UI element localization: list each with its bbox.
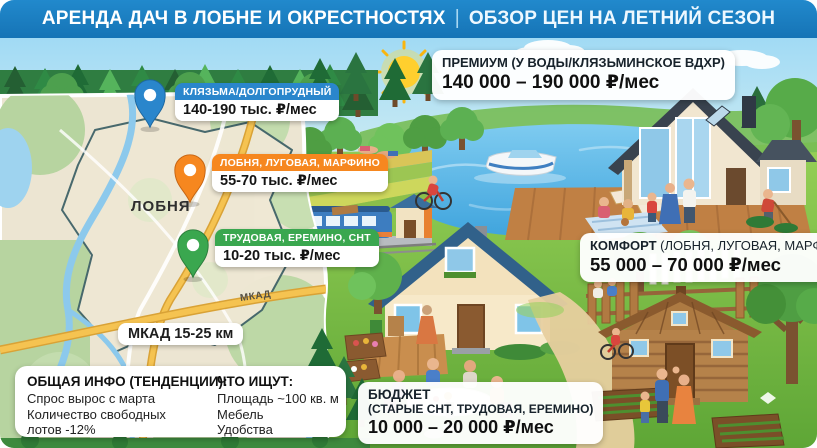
budget-tier-card: БЮДЖЕТ (СТАРЫЕ СНТ, ТРУДОВАЯ, ЕРЕМИНО) 1… — [358, 382, 603, 444]
pin-card-trudovaya: ТРУДОВАЯ, ЕРЕМИНО, СНТ 10-20 тыс. ₽/мес — [215, 229, 379, 267]
pin-card-klyazma-title: КЛЯЗЬМА/ДОЛГОПРУДНЫЙ — [175, 83, 339, 100]
header-subtitle: ОБЗОР ЦЕН НА ЛЕТНИЙ СЕЗОН — [469, 8, 775, 30]
info-search-title: ЧТО ИЩУТ: — [217, 374, 339, 389]
premium-tier-title: ПРЕМИУМ (У ВОДЫ/КЛЯЗЬМИНСКОЕ ВДХР) — [442, 55, 725, 70]
budget-tier-price: 10 000 – 20 000 ₽/мес — [368, 417, 593, 438]
info-trends-title: ОБЩАЯ ИНФО (ТЕНДЕНЦИИ): — [27, 374, 199, 389]
pin-card-lobnya: ЛОБНЯ, ЛУГОВАЯ, МАРФИНО 55-70 тыс. ₽/мес — [212, 154, 388, 192]
info-panel-trends: ОБЩАЯ ИНФО (ТЕНДЕНЦИИ): Спрос вырос с ма… — [27, 374, 205, 429]
header-title: АРЕНДА ДАЧ В ЛОБНЕ И ОКРЕСТНОСТЯХ — [42, 8, 446, 30]
mkad-distance-badge: МКАД 15-25 км — [118, 323, 243, 345]
info-trends-line: Количество свободных лотов -12% — [27, 407, 199, 438]
premium-tier-card: ПРЕМИУМ (У ВОДЫ/КЛЯЗЬМИНСКОЕ ВДХР) 140 0… — [432, 50, 735, 100]
comfort-tier-title-bold: КОМФОРТ — [590, 238, 657, 253]
premium-tier-price: 140 000 – 190 000 ₽/мес — [442, 71, 725, 94]
pin-card-klyazma: КЛЯЗЬМА/ДОЛГОПРУДНЫЙ 140-190 тыс. ₽/мес — [175, 83, 339, 121]
map-city-label: ЛОБНЯ — [131, 198, 191, 215]
info-panel-search: ЧТО ИЩУТ: Площадь ~100 кв. м Мебель Удоб… — [205, 374, 339, 429]
comfort-tier-title-rest: (ЛОБНЯ, ЛУГОВАЯ, МАРФИНО) — [657, 238, 817, 253]
info-search-line: Мебель — [217, 407, 339, 423]
pin-card-lobnya-title: ЛОБНЯ, ЛУГОВАЯ, МАРФИНО — [212, 154, 388, 171]
comfort-tier-price: 55 000 – 70 000 ₽/мес — [590, 254, 817, 276]
grass-patch — [516, 302, 564, 318]
pin-card-klyazma-price: 140-190 тыс. ₽/мес — [175, 100, 339, 121]
header-divider: | — [455, 7, 460, 30]
infographic-dacha-rental: АРЕНДА ДАЧ В ЛОБНЕ И ОКРЕСТНОСТЯХ | ОБЗО… — [0, 0, 817, 448]
info-panel: ОБЩАЯ ИНФО (ТЕНДЕНЦИИ): Спрос вырос с ма… — [15, 366, 346, 437]
comfort-tier-card: КОМФОРТ (ЛОБНЯ, ЛУГОВАЯ, МАРФИНО) 55 000… — [580, 233, 817, 282]
info-trends-line: Спрос вырос с марта — [27, 391, 199, 407]
pin-card-trudovaya-price: 10-20 тыс. ₽/мес — [215, 246, 379, 267]
info-search-line: Удобства — [217, 422, 339, 438]
budget-tier-subtitle: (СТАРЫЕ СНТ, ТРУДОВАЯ, ЕРЕМИНО) — [368, 402, 593, 416]
info-search-line: Площадь ~100 кв. м — [217, 391, 339, 407]
header-bar: АРЕНДА ДАЧ В ЛОБНЕ И ОКРЕСТНОСТЯХ | ОБЗО… — [0, 0, 817, 38]
budget-tier-title: БЮДЖЕТ — [368, 387, 593, 402]
pin-card-trudovaya-title: ТРУДОВАЯ, ЕРЕМИНО, СНТ — [215, 229, 379, 246]
comfort-tier-title: КОМФОРТ (ЛОБНЯ, ЛУГОВАЯ, МАРФИНО) — [590, 238, 817, 253]
pin-card-lobnya-price: 55-70 тыс. ₽/мес — [212, 171, 388, 192]
